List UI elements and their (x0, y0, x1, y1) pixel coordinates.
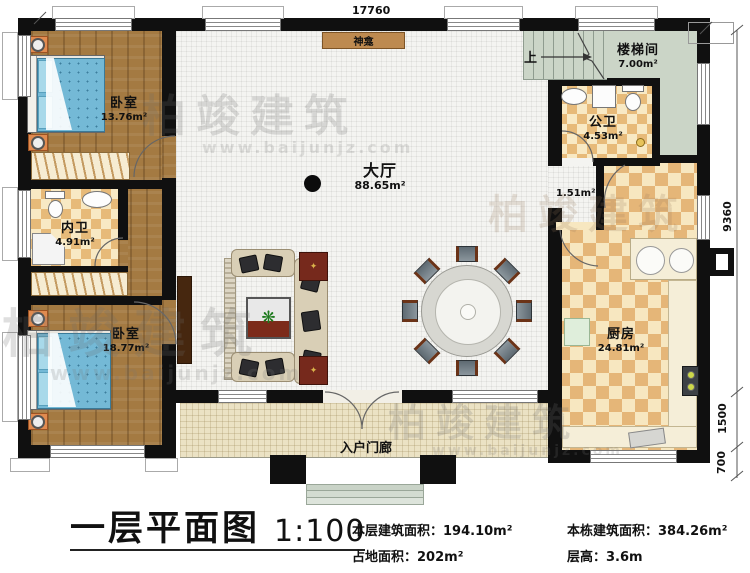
stat-value: 3.6m (606, 550, 643, 565)
dim-top: 17760 (352, 4, 390, 17)
stat-value: 384.26m² (658, 524, 727, 539)
floor-plan: ❋ ✦ ✦ 上 神龛 (0, 0, 750, 573)
stat-label: 层高： (567, 550, 606, 565)
room-name: 卧室 (110, 97, 138, 112)
room-area: 4.91m² (55, 237, 94, 249)
room-area: 24.81m² (598, 343, 644, 355)
stairs-up-label: 上 (524, 47, 537, 66)
room-area: 4.53m² (583, 131, 622, 143)
corridor-area-label: 1.51m² (556, 188, 595, 199)
stat-value: 194.10m² (443, 524, 512, 539)
stat-floor-area: 本层建筑面积：194.10m² (352, 520, 567, 539)
stat-footprint: 占地面积：202m² (352, 546, 567, 565)
porch-label: 入户门廊 (340, 437, 392, 456)
dim-right-700: 700 (715, 451, 728, 474)
stat-building-area: 本栋建筑面积：384.26m² (567, 520, 727, 539)
room-area: 13.76m² (101, 112, 147, 124)
dim-right-1500: 1500 (716, 403, 729, 434)
room-name: 大厅 (363, 162, 397, 180)
room-area: 18.77m² (103, 343, 149, 355)
room-area: 7.00m² (618, 59, 657, 71)
room-label-bedroom1: 卧室 13.76m² (88, 97, 160, 123)
stats-block: 本层建筑面积：194.10m² 本栋建筑面积：384.26m² 占地面积：202… (352, 516, 727, 568)
stat-label: 本层建筑面积： (352, 524, 443, 539)
dim-right-9360: 9360 (721, 201, 734, 232)
stat-label: 本栋建筑面积： (567, 524, 658, 539)
room-label-inner-bath: 内卫 4.91m² (44, 222, 106, 248)
room-label-public-bath: 公卫 4.53m² (570, 116, 636, 142)
room-label-stairwell: 楼梯间 7.00m² (600, 44, 676, 70)
stat-value: 202m² (417, 550, 463, 565)
title-block: 一层平面图 1:100 (70, 512, 365, 551)
room-name: 公卫 (589, 116, 617, 131)
room-name: 厨房 (607, 328, 635, 343)
stat-label: 占地面积： (352, 550, 417, 565)
plan-title: 一层平面图 (70, 512, 260, 547)
stat-floor-height: 层高：3.6m (567, 546, 727, 565)
room-label-hall: 大厅 88.65m² (340, 162, 420, 193)
room-name: 内卫 (61, 222, 89, 237)
room-area: 88.65m² (354, 180, 405, 193)
room-name: 卧室 (112, 328, 140, 343)
room-label-bedroom2: 卧室 18.77m² (90, 328, 162, 354)
room-name: 楼梯间 (617, 44, 659, 59)
annotation-overlay (0, 0, 750, 573)
room-label-kitchen: 厨房 24.81m² (584, 328, 658, 354)
